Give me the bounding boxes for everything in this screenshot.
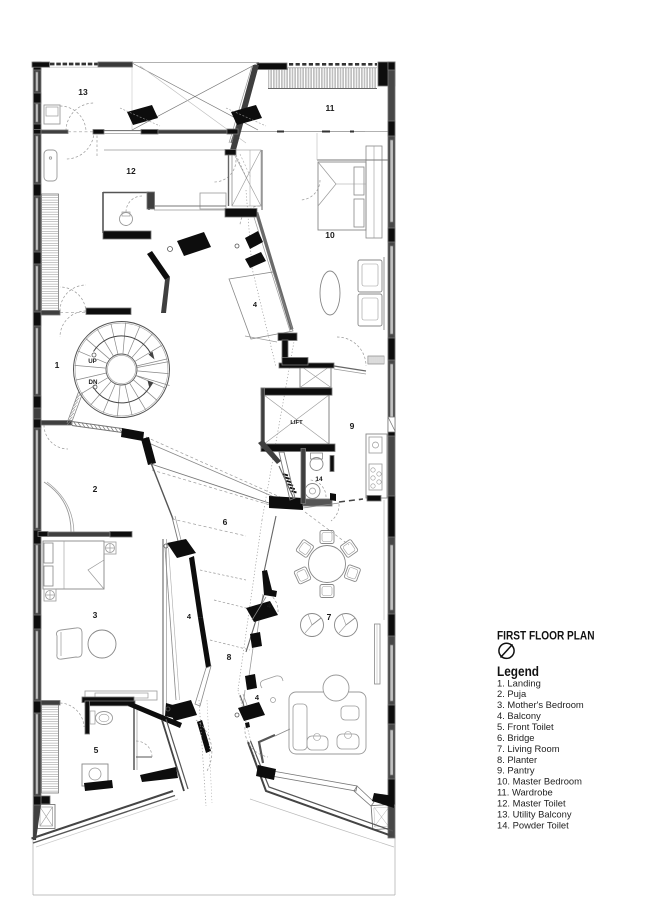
svg-text:3. Mother's Bedroom: 3. Mother's Bedroom <box>497 699 584 710</box>
svg-text:5: 5 <box>94 745 99 755</box>
svg-text:5. Front Toilet: 5. Front Toilet <box>497 721 554 732</box>
svg-text:10: 10 <box>325 230 335 240</box>
svg-text:UP: UP <box>88 358 97 365</box>
svg-text:11: 11 <box>326 103 335 113</box>
svg-text:3: 3 <box>93 610 98 620</box>
svg-text:8. Planter: 8. Planter <box>497 754 537 765</box>
svg-text:1. Landing: 1. Landing <box>497 677 541 688</box>
svg-text:LIFT: LIFT <box>290 420 303 426</box>
svg-text:2: 2 <box>93 484 98 494</box>
svg-text:12. Master Toilet: 12. Master Toilet <box>497 798 566 809</box>
svg-text:9. Pantry: 9. Pantry <box>497 765 535 776</box>
svg-text:9: 9 <box>350 421 355 431</box>
svg-text:7: 7 <box>327 612 332 622</box>
svg-text:10. Master Bedroom: 10. Master Bedroom <box>497 776 582 787</box>
svg-text:14. Powder Toilet: 14. Powder Toilet <box>497 819 569 830</box>
svg-text:13: 13 <box>78 87 88 97</box>
svg-text:11. Wardrobe: 11. Wardrobe <box>497 787 553 798</box>
svg-text:4. Balcony: 4. Balcony <box>497 710 541 721</box>
svg-text:1: 1 <box>55 360 60 370</box>
svg-text:6: 6 <box>223 517 228 527</box>
svg-text:6. Bridge: 6. Bridge <box>497 732 535 743</box>
svg-text:DN: DN <box>89 379 98 386</box>
svg-text:7. Living Room: 7. Living Room <box>497 743 560 754</box>
svg-text:13. Utility Balcony: 13. Utility Balcony <box>497 809 572 820</box>
svg-text:14: 14 <box>315 476 323 483</box>
svg-text:2. Puja: 2. Puja <box>497 688 527 699</box>
svg-text:8: 8 <box>227 652 232 662</box>
svg-text:12: 12 <box>126 166 136 176</box>
svg-text:FIRST FLOOR PLAN: FIRST FLOOR PLAN <box>497 629 595 643</box>
